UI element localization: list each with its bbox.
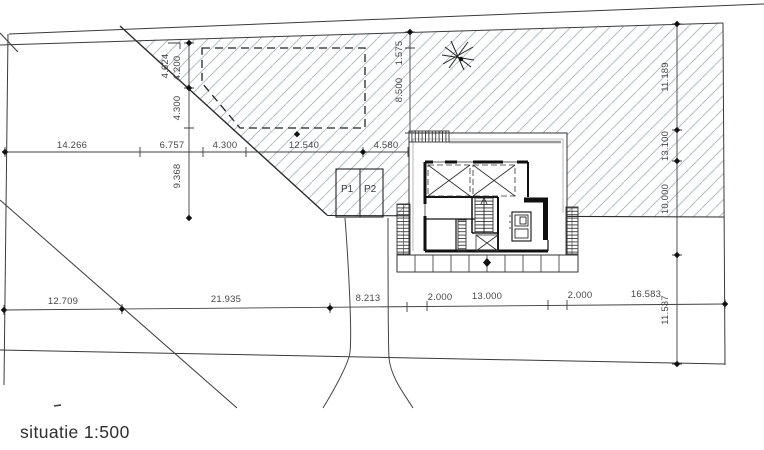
dim-label: 1.575 bbox=[394, 41, 405, 66]
drawing-title: situatie 1:500 bbox=[20, 422, 130, 442]
boundary-corner-stub bbox=[0, 33, 18, 52]
dim-label: 16.583 bbox=[631, 289, 661, 300]
dim-label: 12.540 bbox=[289, 140, 319, 151]
dim-label: 2.000 bbox=[568, 290, 593, 301]
dim-label: 8.213 bbox=[356, 293, 381, 304]
dim-label: 13.100 bbox=[660, 131, 671, 161]
parking-label-p2: P2 bbox=[364, 184, 377, 195]
dim-label: 12.709 bbox=[48, 296, 78, 307]
dim-label: 4.624 bbox=[160, 54, 171, 79]
dim-label: 13.000 bbox=[472, 291, 502, 302]
dim-label: 4.300 bbox=[172, 96, 183, 121]
dim-label: 9.368 bbox=[172, 164, 183, 189]
parking-label-p1: P1 bbox=[341, 184, 354, 195]
diagonal-parcel-line bbox=[0, 200, 237, 408]
dimension-line-bottom bbox=[4, 304, 725, 310]
dim-label: 4.300 bbox=[213, 140, 238, 151]
dim-label: 11.189 bbox=[660, 62, 671, 92]
dim-label: 2.000 bbox=[428, 292, 453, 303]
terrace-pavers bbox=[397, 255, 578, 272]
dim-label: 11.537 bbox=[660, 295, 671, 325]
dim-label: 14.266 bbox=[57, 140, 87, 151]
dim-label: 4.580 bbox=[374, 140, 399, 151]
dim-label: 6.757 bbox=[160, 140, 185, 151]
dim-label: 4.200 bbox=[172, 56, 183, 81]
boundary-bottom bbox=[0, 350, 725, 364]
building-footprint bbox=[397, 131, 578, 272]
dim-label: 8.500 bbox=[394, 78, 405, 103]
dim-label: 10.000 bbox=[660, 184, 671, 214]
driveway-left-edge bbox=[323, 218, 351, 408]
small-tick-mark bbox=[54, 405, 61, 406]
secondary-stair bbox=[458, 220, 466, 251]
dim-label: 21.935 bbox=[211, 294, 241, 305]
kitchen-island bbox=[509, 212, 531, 241]
site-plan-drawing: P1 P2 bbox=[0, 0, 764, 450]
boundary-left bbox=[4, 34, 8, 385]
